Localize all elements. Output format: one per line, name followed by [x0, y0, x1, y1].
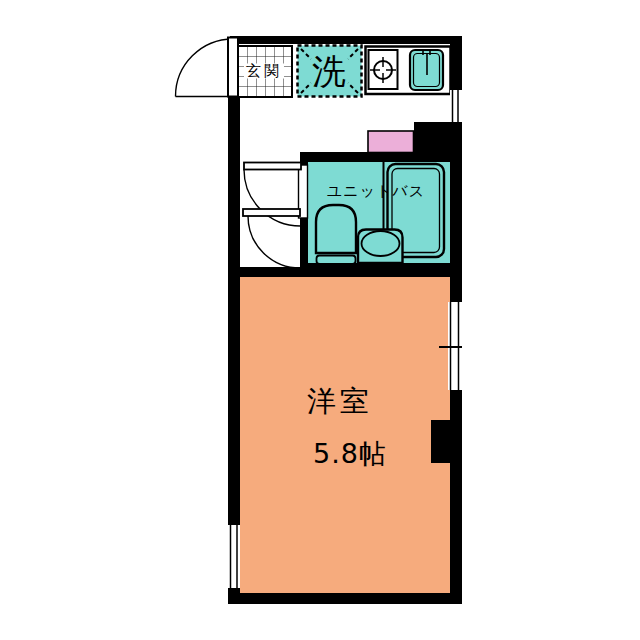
room-door-swing-arc — [248, 216, 300, 268]
kitchen-side-window — [450, 90, 462, 122]
entrance-door-leaf — [228, 38, 238, 97]
bath-sink-icon — [358, 230, 403, 264]
right-wall-mid — [450, 162, 462, 302]
unit-bath-label: ユニットバス — [327, 184, 425, 199]
entrance-door — [176, 38, 239, 97]
room-door-leaf — [243, 209, 300, 216]
right-wall-lower — [450, 390, 462, 604]
entrance-door-swing-arc — [176, 39, 234, 97]
bath-door-swing-arc — [244, 170, 301, 227]
counter-block — [368, 131, 414, 153]
room-size-label: 5.8帖 — [313, 440, 387, 467]
right-wall-upper — [450, 36, 462, 90]
room-top-wall — [228, 267, 462, 277]
bath-top-wall — [300, 152, 462, 162]
left-wall-window — [228, 525, 240, 588]
left-wall — [228, 97, 240, 525]
kitchen-counter — [366, 47, 451, 95]
room-label: 洋室 — [307, 387, 373, 416]
toilet-icon — [316, 205, 356, 264]
pillar — [431, 420, 450, 463]
genkan-label: 玄関 — [244, 64, 284, 79]
bath-door-leaf — [244, 163, 301, 170]
floorplan-drawing — [0, 0, 640, 640]
kitchen-sink-icon — [410, 49, 443, 90]
bottom-wall — [228, 593, 462, 604]
top-wall — [230, 36, 462, 44]
washer-label: 洗 — [312, 54, 346, 88]
floorplan: 玄関 洗 ユニットバス 洋室 5.8帖 — [0, 0, 640, 640]
western-room-floor — [240, 277, 450, 593]
